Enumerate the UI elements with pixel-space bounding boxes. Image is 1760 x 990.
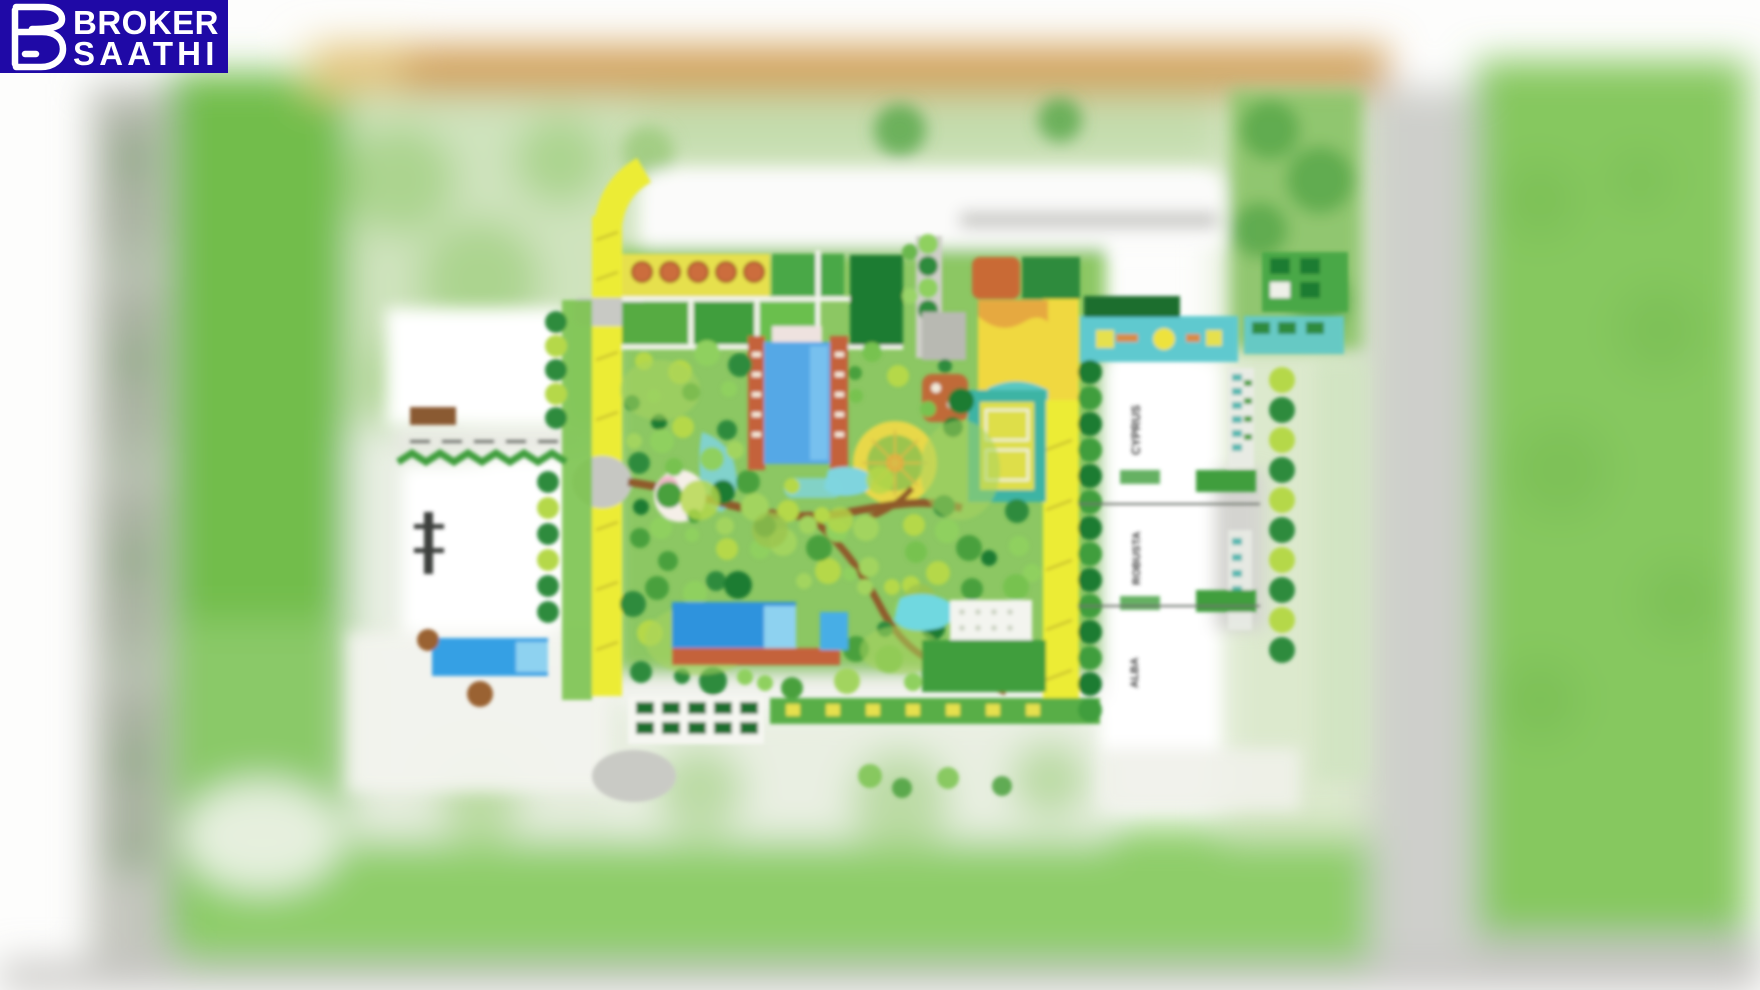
svg-text:ALBA: ALBA xyxy=(1129,657,1141,688)
svg-text:CYPRUS: CYPRUS xyxy=(1129,405,1143,455)
svg-text:ROBUSTA: ROBUSTA xyxy=(1131,531,1143,585)
svg-text:SAATHI: SAATHI xyxy=(73,35,219,72)
